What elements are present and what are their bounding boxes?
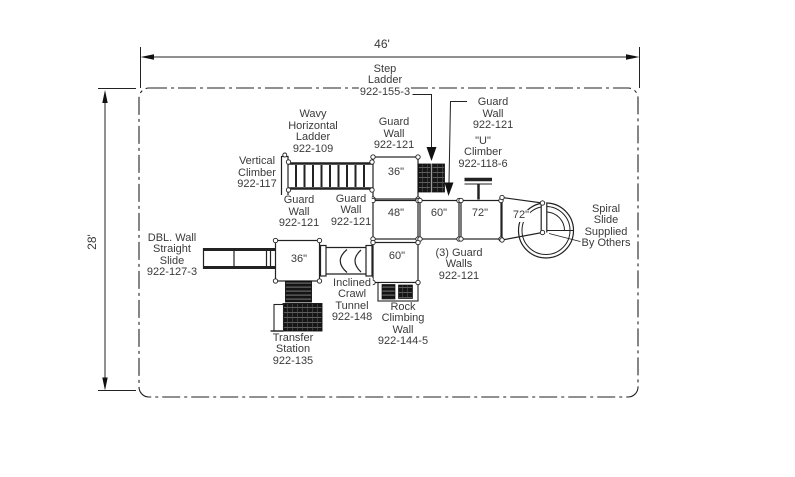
wavy-horizontal-ladder-label: Wavy Horizontal Ladder 922-109 (287, 109, 339, 155)
arrow-right-icon (626, 54, 640, 59)
arrow-up-icon (102, 90, 107, 103)
rock-climbing-wall-label: Rock Climbing Wall 922-144-5 (377, 302, 429, 348)
leader-arrow-icon (427, 147, 437, 161)
guard-wall-top-right-label: Guard Wall 922-121 (472, 97, 514, 132)
vertical-climber-label: Vertical Climber 922-117 (236, 156, 278, 191)
deck-72-b-label: 72" (512, 210, 530, 222)
u-climber-shape (465, 180, 493, 200)
deck-36-top (373, 157, 418, 199)
crawl-tunnel-shape (321, 246, 373, 277)
three-guard-walls-label: (3) Guard Walls 922-121 (434, 248, 483, 283)
deck-36-top-label: 36" (387, 167, 405, 179)
guard-wall-mid-label: Guard Wall 922-121 (330, 194, 372, 229)
deck-36-low-label: 36" (290, 254, 308, 266)
wavy-ladder-shape (289, 164, 373, 189)
u-climber-label: "U" Climber 922-118-6 (457, 136, 508, 171)
height-dimension-label: 28' (86, 233, 98, 251)
leader-step-ladder (413, 95, 437, 162)
deck-48-label: 48" (387, 208, 405, 220)
spiral-slide-label: Spiral Slide Supplied By Others (581, 204, 632, 250)
height-dimension (98, 89, 136, 391)
dbl-wall-straight-slide-label: DBL. Wall Straight Slide 922-127-3 (146, 233, 198, 279)
transfer-station-label: Transfer Station 922-135 (272, 333, 315, 368)
step-ladder-shape (419, 164, 445, 192)
straight-slide-shape (204, 248, 276, 269)
arrow-down-icon (102, 378, 107, 391)
guard-wall-top-label: Guard Wall 922-121 (373, 117, 415, 152)
deck-60-low (373, 243, 418, 283)
guard-wall-left-label: Guard Wall 922-121 (278, 195, 320, 230)
transfer-station-shape (271, 281, 323, 331)
step-ladder-label: Step Ladder 922-155-3 (359, 64, 411, 99)
rock-wall-shape (378, 283, 418, 302)
arrow-left-icon (141, 54, 155, 59)
deck-72-a-label: 72" (471, 208, 489, 220)
width-dimension-label: 46' (373, 38, 391, 50)
deck-60-mid-label: 60" (430, 208, 448, 220)
leader-arrow-icon (445, 183, 454, 197)
inclined-crawl-tunnel-label: Inclined Crawl Tunnel 922-148 (331, 278, 373, 324)
drawing-canvas: 46' 28' Step Ladder 922-155-3 Guard Wall… (0, 0, 795, 477)
deck-60-low-label: 60" (388, 251, 406, 263)
